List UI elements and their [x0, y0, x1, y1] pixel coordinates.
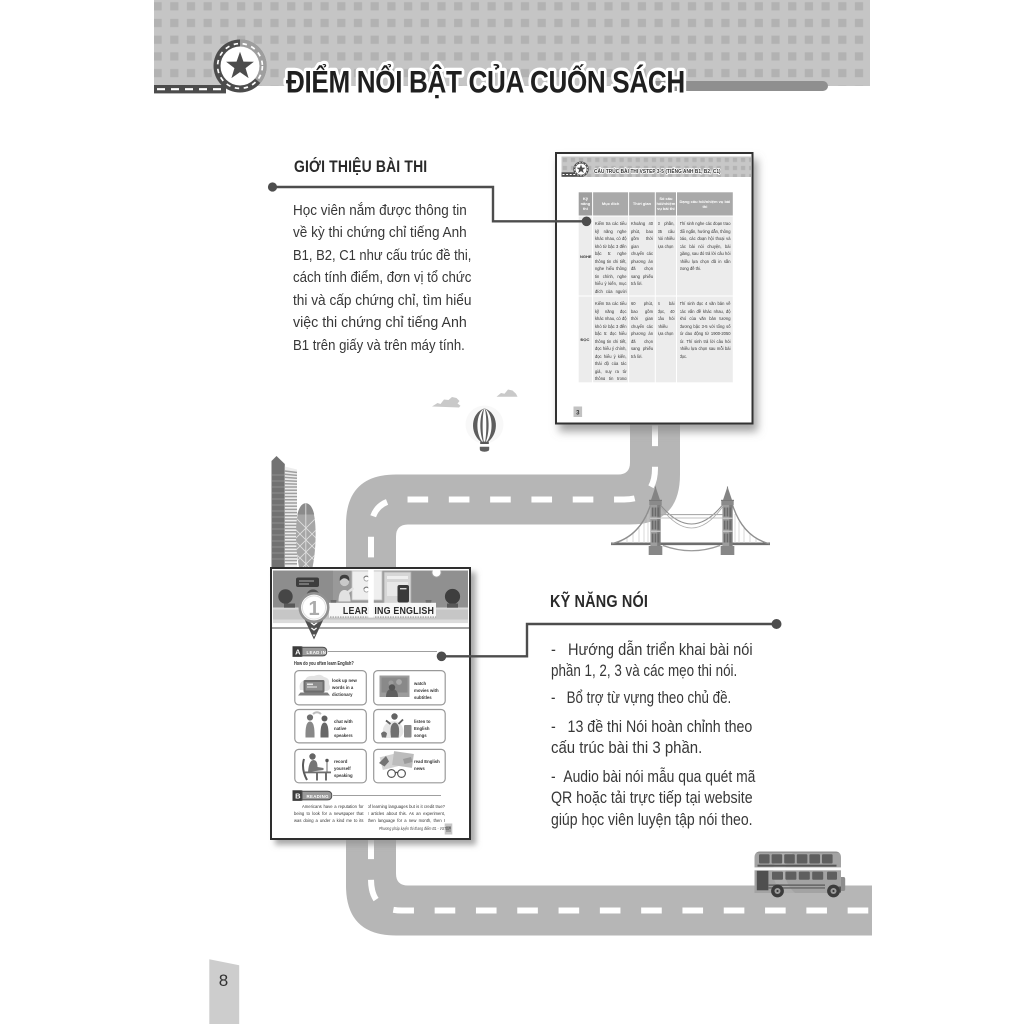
svg-text:1: 1 — [308, 598, 319, 620]
svg-text:READING: READING — [307, 794, 330, 799]
svg-text:8: 8 — [219, 971, 228, 990]
svg-text:ĐIỂM NỔI BẬT CỦA CUỐN SÁCH: ĐIỂM NỔI BẬT CỦA CUỐN SÁCH — [286, 63, 685, 100]
svg-text:B: B — [295, 792, 301, 801]
svg-text:LEARNING ENGLISH: LEARNING ENGLISH — [343, 606, 434, 618]
svg-text:LEAD IN: LEAD IN — [307, 650, 327, 655]
svg-text:A: A — [295, 648, 301, 657]
svg-text:CẤU TRÚC BÀI THI VSTEP 3-5 (TI: CẤU TRÚC BÀI THI VSTEP 3-5 (TIẾNG ANH B1… — [594, 167, 721, 175]
